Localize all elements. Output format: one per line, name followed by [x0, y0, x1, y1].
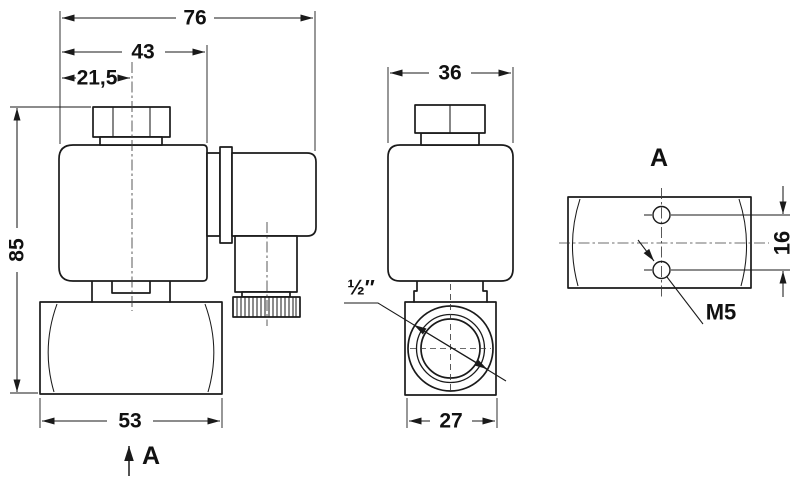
dim-43-label: 43 [131, 41, 154, 64]
section-arrow-label: A [142, 442, 160, 470]
nut-neck-front [421, 133, 479, 145]
connector-gasket [220, 147, 232, 243]
technical-drawing-canvas: 76 43 21,5 85 53 A [0, 0, 800, 482]
hex-nut-side [93, 107, 170, 137]
view-a-label: A [650, 144, 668, 172]
side-view [40, 62, 316, 394]
knurled-gland-nut [233, 297, 300, 317]
coil-body-side [59, 145, 207, 281]
thread-m5-label: M5 [706, 300, 737, 325]
din-connector-body [232, 153, 316, 236]
coil-body-front [388, 145, 513, 281]
bottom-view [559, 188, 769, 298]
connector-lower-block [235, 236, 297, 292]
dim-76-label: 76 [183, 7, 206, 30]
dim-27-label: 27 [439, 410, 462, 433]
drawing-page: 76 43 21,5 85 53 A [0, 0, 800, 482]
front-view [388, 105, 513, 395]
valve-neck-side [92, 281, 170, 302]
dim-53-label: 53 [118, 410, 141, 433]
valve-body-side [40, 302, 222, 394]
dim-85-label: 85 [6, 238, 29, 262]
valve-body-bottom [568, 197, 751, 288]
dim-21-5-label: 21,5 [77, 67, 118, 90]
dim-36-label: 36 [438, 62, 461, 85]
connector-boss [207, 153, 220, 236]
nut-neck-side [100, 137, 162, 145]
dim-16-label: 16 [770, 231, 795, 255]
port-size-label: ½″ [347, 277, 375, 300]
